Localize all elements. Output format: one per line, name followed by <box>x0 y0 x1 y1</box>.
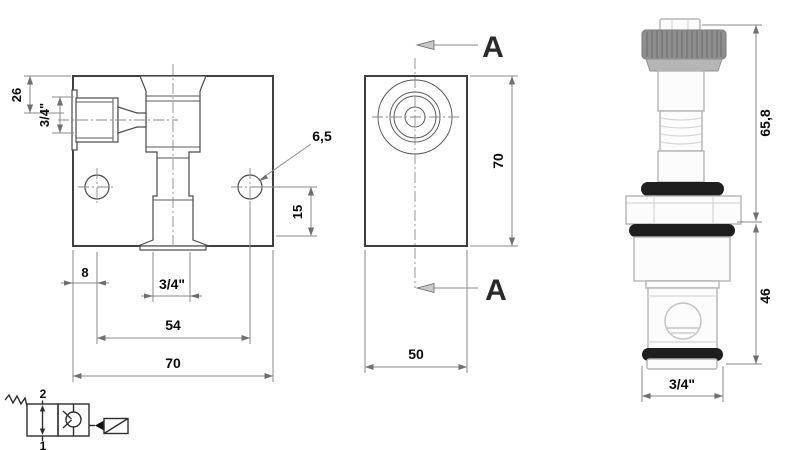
check-ball <box>66 412 81 427</box>
section-label-top: A <box>482 31 504 64</box>
dimension-70-width: 70 <box>73 250 273 382</box>
dim-26-label: 26 <box>9 88 24 102</box>
body-upper <box>634 237 730 281</box>
dim-thread-label: 3/4" <box>669 376 695 392</box>
side-view-body <box>365 76 467 246</box>
dim-height-label: 70 <box>490 153 506 169</box>
dimension-8: 8 <box>61 250 109 382</box>
flow-arrow-up <box>40 405 45 412</box>
dim-mount-hole-label: 6,5 <box>312 128 332 144</box>
flow-arrow-down <box>40 429 45 436</box>
cartridge-illustration: 65,8 46 3/4" <box>626 19 773 402</box>
dim-side-port-label: 3/4" <box>37 103 52 127</box>
section-arrow-bottom: A <box>417 274 507 307</box>
dim-bottom-port-label: 3/4" <box>159 276 185 292</box>
dim-hole-height-label: 15 <box>290 205 305 219</box>
cap-collar <box>646 59 722 71</box>
section-label-bottom: A <box>485 274 507 307</box>
knurled-cap <box>642 30 726 59</box>
manual-override-tip <box>660 19 700 31</box>
hydraulic-symbol: 2 1 <box>5 387 128 450</box>
stem-upper <box>658 71 704 111</box>
dimension-bottom-port: 3/4" <box>141 252 202 302</box>
side-view: A A 70 50 <box>365 31 518 373</box>
dimension-50-depth: 50 <box>365 250 467 373</box>
body-lower <box>648 288 717 350</box>
hex-flange <box>626 196 741 224</box>
o-ring-top <box>641 182 724 196</box>
port-2-label: 2 <box>40 387 47 401</box>
drawing-canvas: 26 3/4" 6,5 15 8 <box>0 0 800 450</box>
spring-symbol <box>5 395 27 406</box>
dimension-thread: 3/4" <box>642 366 723 402</box>
valve-technical-drawing: 26 3/4" 6,5 15 8 <box>0 0 800 450</box>
dimension-70-height: 70 <box>470 76 518 246</box>
dim-lower-length-label: 46 <box>757 288 773 304</box>
body-step <box>646 281 719 288</box>
nose-tip <box>647 359 717 369</box>
stem-ribbed <box>660 111 702 151</box>
o-ring-middle <box>629 224 735 237</box>
front-section-view: 26 3/4" 6,5 15 8 <box>9 64 332 382</box>
solenoid-arrow <box>95 421 104 431</box>
stem-lower <box>658 151 704 182</box>
dim-depth-label: 50 <box>408 346 424 362</box>
port-1-label: 1 <box>40 439 47 450</box>
dim-width-label: 70 <box>165 355 181 371</box>
dim-hole-spacing-label: 54 <box>165 317 181 333</box>
dimension-side-port: 3/4" <box>37 97 74 133</box>
section-arrow-top: A <box>417 31 504 64</box>
dimension-46: 46 <box>726 224 773 364</box>
dim-left-offset-label: 8 <box>81 265 88 280</box>
dim-upper-length-label: 65,8 <box>757 109 773 136</box>
